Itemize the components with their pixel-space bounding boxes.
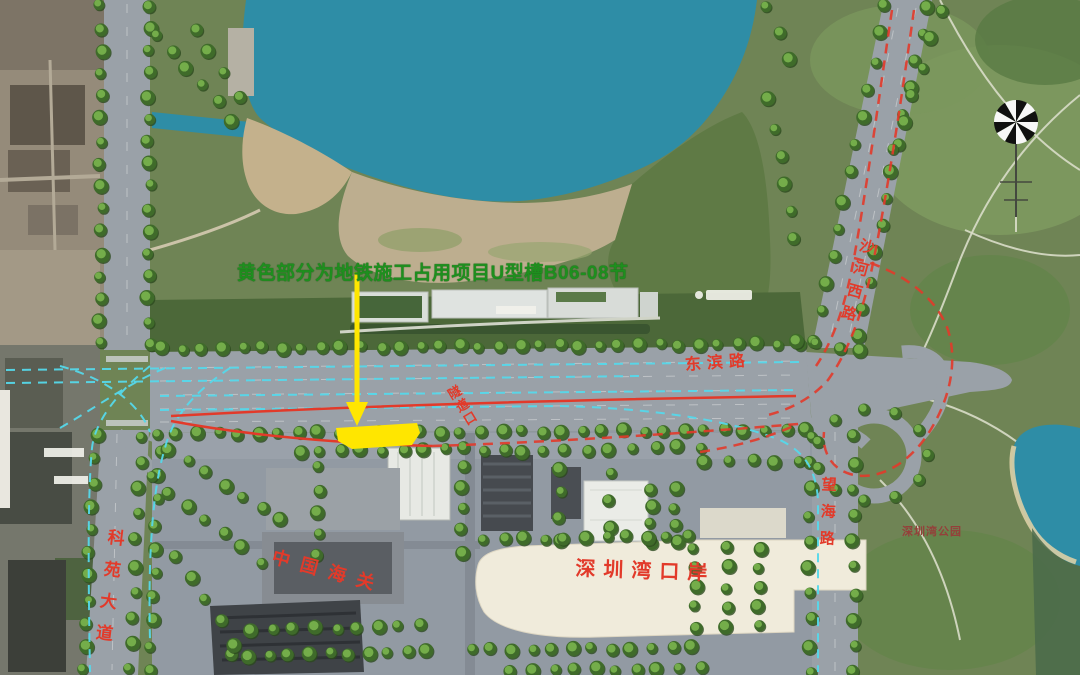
customs-parking: [210, 600, 364, 675]
place-label-bay-port: 深圳湾口岸: [575, 552, 716, 586]
construction-note: 黄色部分为地铁施工占用项目U型槽B06-08节: [237, 258, 629, 285]
place-label-bay-park: 深圳湾公园: [902, 523, 962, 539]
terminal-annex: [700, 508, 786, 538]
road-label-dongbin: 东滨路: [684, 346, 752, 375]
scrub: [378, 228, 462, 252]
crosswalk: [106, 420, 148, 426]
aerial-map: 黄色部分为地铁施工占用项目U型槽B06-08节 东滨路 沙河西路 隧道口 望海路…: [0, 0, 1080, 675]
road-label-wanghai: 望海路: [815, 476, 839, 558]
forest-patch: [910, 255, 1070, 365]
dam: [228, 28, 254, 96]
crosswalk: [106, 356, 148, 362]
map-canvas: [0, 0, 1080, 675]
construction-area: [0, 0, 106, 345]
